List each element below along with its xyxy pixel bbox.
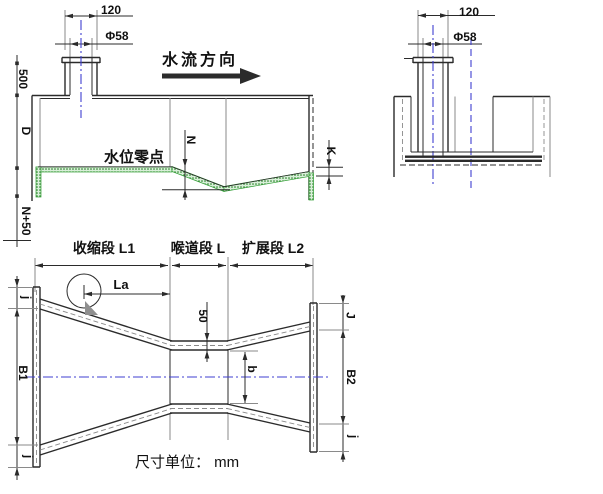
plan-dim-b: b (245, 359, 259, 379)
side-dim-N: N (184, 130, 198, 150)
side-dim-N-plus-50: N+50 (19, 198, 33, 244)
end-dim-120: 120 (454, 5, 484, 19)
plan-dim-J-top-right: J (345, 306, 358, 326)
section-label-throat: 喉道段 L (163, 240, 233, 256)
side-dim-120: 120 (96, 3, 126, 17)
plan-dim-La: La (107, 277, 135, 292)
plan-dim-B1: B1 (16, 361, 30, 385)
side-dim-500: 500 (16, 62, 30, 96)
water-zero-label: 水位零点 (94, 149, 174, 165)
section-label-diverging: 扩展段 L2 (233, 240, 313, 256)
plan-dim-j-top-left: j (21, 288, 34, 308)
flow-direction-arrow (162, 68, 261, 84)
plan-dim-j-bottom-right: j (348, 427, 361, 447)
plan-dim-j-bottom-left: j (23, 447, 36, 467)
end-dim-phi58: Φ58 (449, 30, 481, 44)
plan-dim-B2: B2 (344, 364, 358, 390)
side-view-floor-lining (36, 167, 314, 201)
side-dim-K: K (324, 141, 338, 161)
plan-view-flume-body (25, 287, 330, 467)
side-dim-D: D (19, 121, 33, 141)
section-label-converging: 收缩段 L1 (64, 240, 144, 256)
flume-drawing: 120 Φ58 水流方向 500 D 水位零点 N K N+50 120 Φ58… (0, 0, 603, 494)
side-view-pipe (55, 10, 133, 118)
plan-dim-50: 50 (196, 303, 210, 329)
side-dim-phi58: Φ58 (101, 29, 133, 43)
flow-direction-label: 水流方向 (155, 52, 245, 70)
unit-note: 尺寸单位： mm (135, 453, 275, 471)
